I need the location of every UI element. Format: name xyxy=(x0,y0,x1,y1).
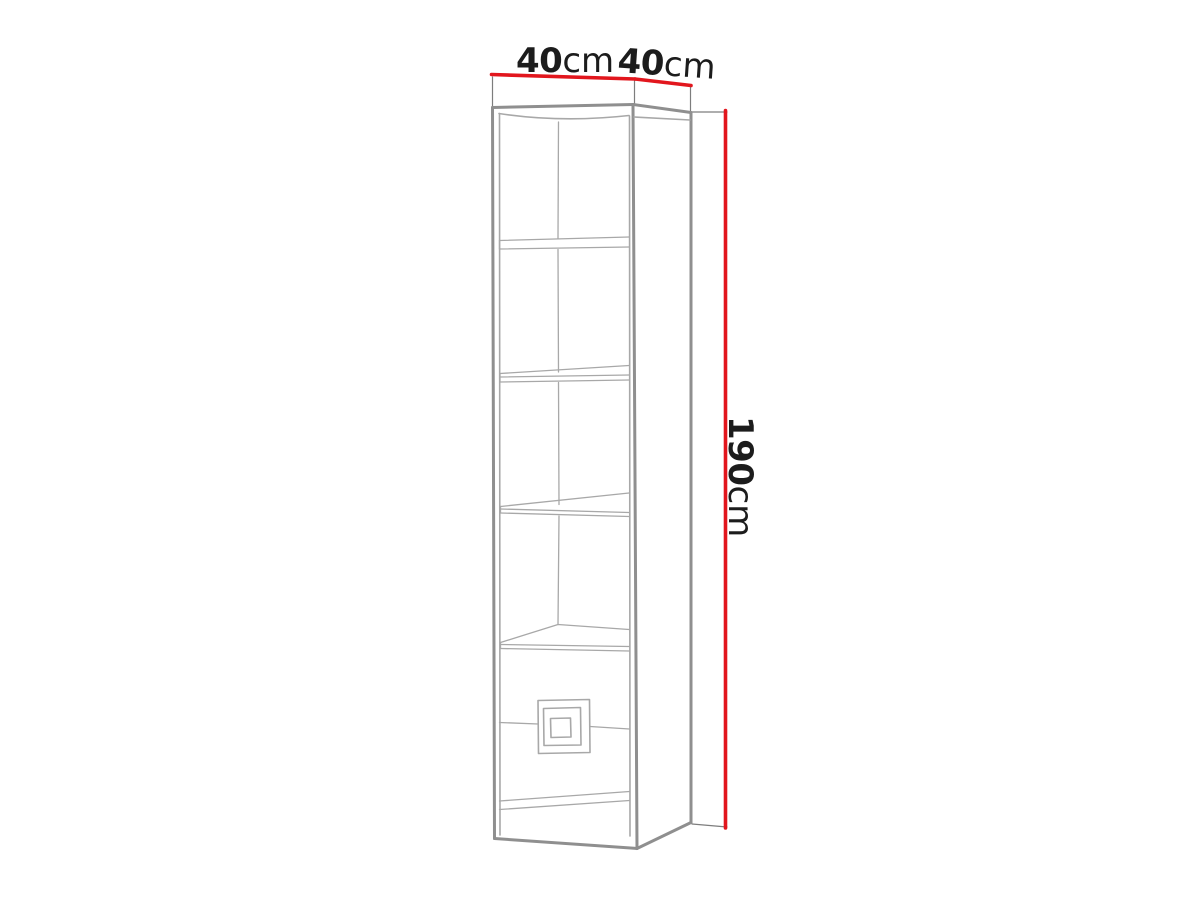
width-dimension-label: 40cm xyxy=(516,44,614,78)
bookcase-line-drawing xyxy=(0,0,1200,899)
height-value: 190 xyxy=(720,416,760,485)
drawer-groove xyxy=(590,727,630,730)
depth-dimension-label: 40cm xyxy=(617,44,717,85)
depth-unit: cm xyxy=(663,44,717,88)
width-unit: cm xyxy=(562,41,614,81)
drawer-front xyxy=(500,700,630,754)
drawer-groove xyxy=(500,723,539,725)
cabinet-outline xyxy=(493,105,692,849)
depth-value: 40 xyxy=(616,41,665,84)
shelf-4 xyxy=(501,625,630,652)
shelf-3 xyxy=(501,493,630,517)
back-panel-seam xyxy=(558,122,559,624)
shelf-1 xyxy=(500,237,630,249)
width-value: 40 xyxy=(516,41,562,81)
height-unit: cm xyxy=(720,485,760,537)
shelves xyxy=(500,237,630,651)
height-dimension-label: 190cm xyxy=(723,416,757,537)
cabinet-inner-lines xyxy=(499,114,690,837)
shelf-2 xyxy=(500,366,629,383)
plinth-lines xyxy=(500,792,630,810)
product-dimension-diagram: 40cm 40cm 190cm xyxy=(0,0,1200,899)
square-handle-icon xyxy=(538,700,590,754)
